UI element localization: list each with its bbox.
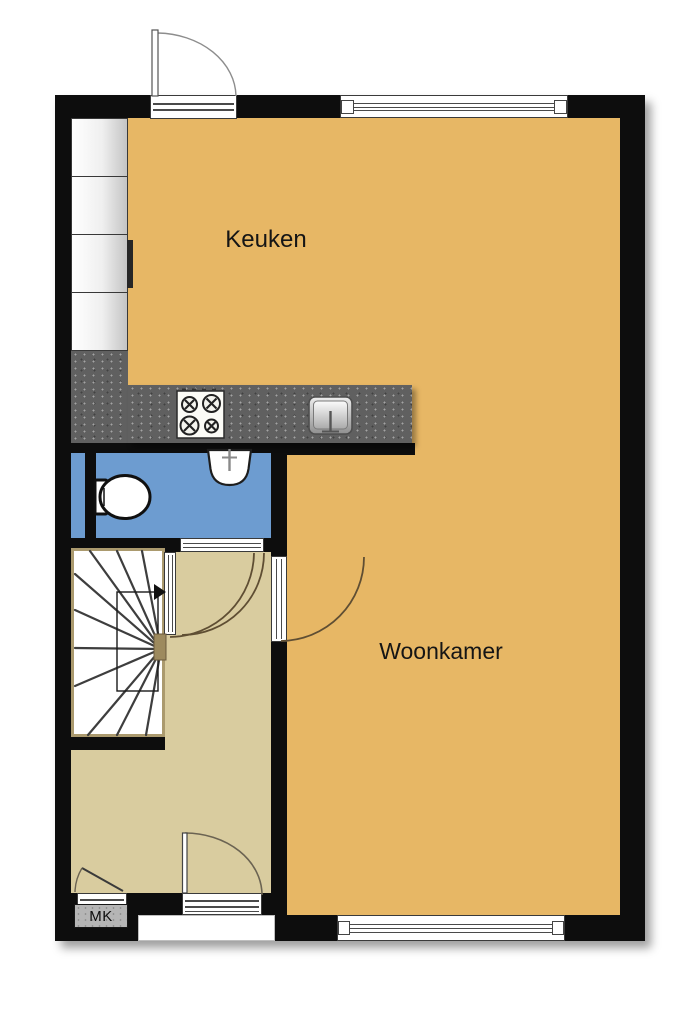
kitchen-living-opening-floor (415, 443, 620, 455)
room-woonkamer-floor (287, 455, 620, 915)
room-label-woonkamer: Woonkamer (361, 638, 521, 665)
meterkast-label: MK (89, 908, 113, 925)
entrance-porch (138, 915, 275, 941)
kitchen-cabinet-row-icon (71, 234, 128, 293)
kitchen-counter-icon (128, 385, 412, 443)
kitchen-cabinet-row-icon (71, 118, 128, 177)
living-room-door-frame (271, 556, 287, 642)
living-room-window (337, 915, 565, 941)
room-label-keuken: Keuken (206, 226, 326, 254)
winder-staircase-icon (71, 548, 165, 737)
kitchen-cabinet-row-icon (71, 292, 128, 351)
floor-plan: MK Keuken Woonkamer (0, 0, 696, 1024)
room-toilet-floor (71, 453, 271, 538)
stairs-bottom-wall (71, 737, 165, 750)
back-door-swing (152, 30, 236, 96)
kitchen-window (340, 95, 568, 118)
toilet-shaft-wall (85, 443, 96, 538)
toilet-door-frame (180, 538, 264, 552)
kitchen-counter-column (71, 351, 128, 443)
stairs-door-leaf (164, 552, 176, 635)
meter-cupboard-icon: MK (74, 904, 128, 928)
back-door-opening (150, 95, 237, 119)
front-door-opening (182, 893, 262, 915)
cabinet-handle (127, 240, 133, 288)
kitchen-cabinet-row-icon (71, 176, 128, 235)
